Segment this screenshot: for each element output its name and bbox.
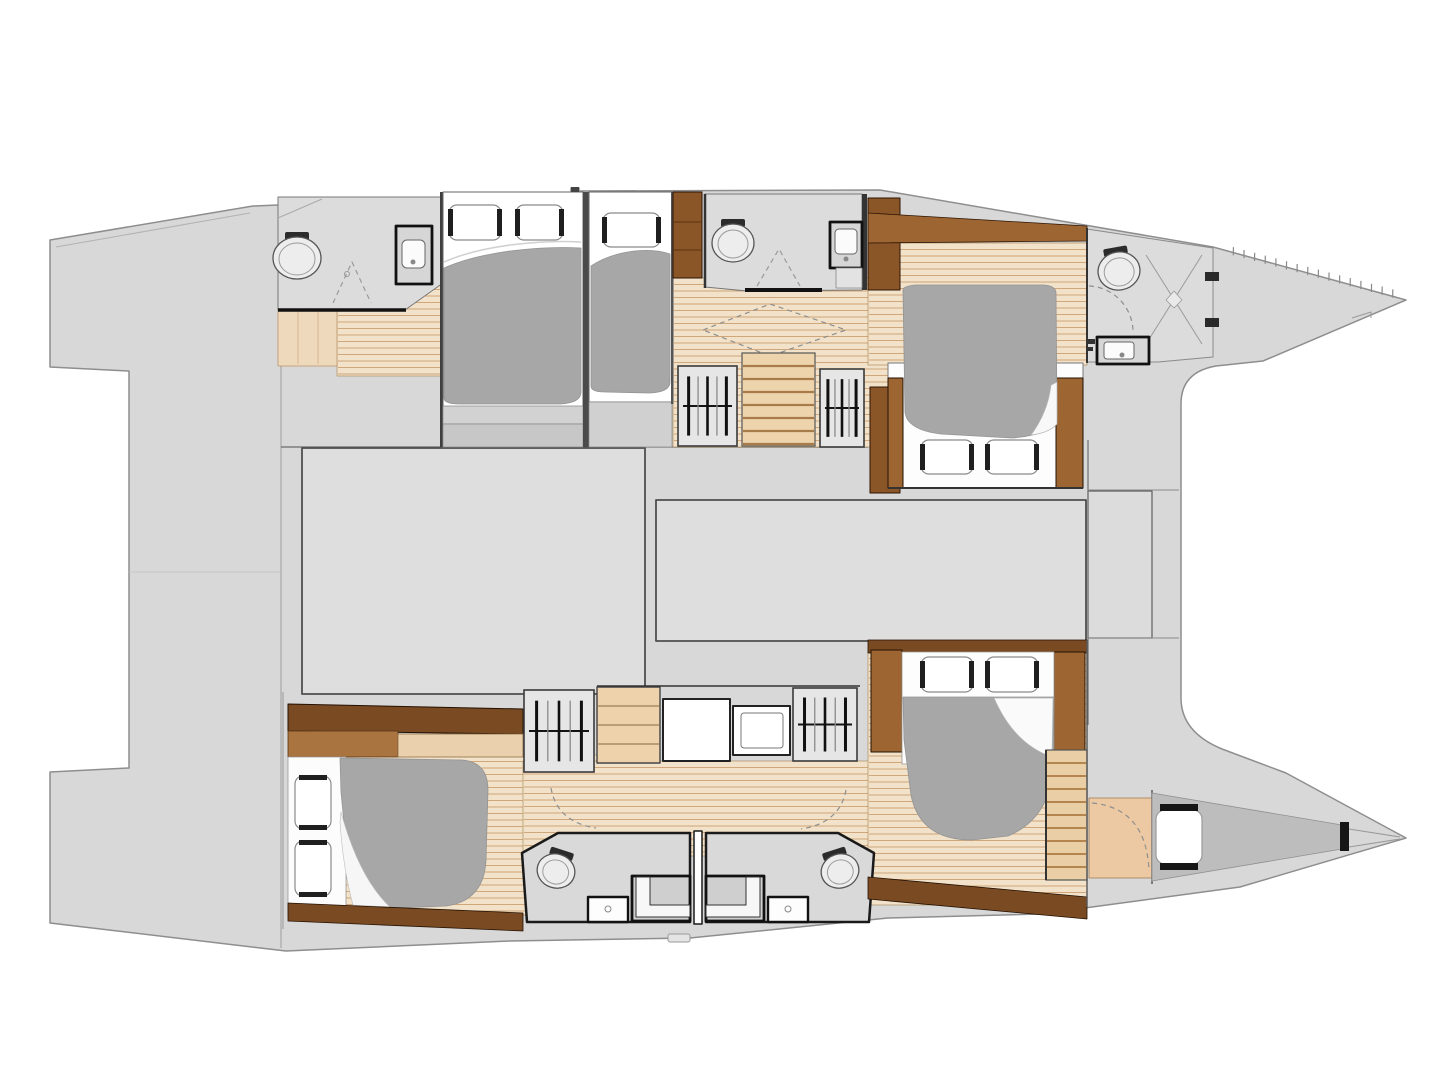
- upper-single-cabin-foot-strip: [589, 402, 672, 447]
- upper-single-cabin-window: [602, 213, 661, 247]
- lower-sink-left: [588, 897, 628, 922]
- upper-fwd-bed-mattress: [903, 285, 1057, 438]
- transom-step: [668, 934, 690, 942]
- upper-fwd-cabin-window-2: [985, 440, 1039, 474]
- upper-fwd-cabinet-1: [868, 198, 900, 290]
- deck-step-tick: [571, 187, 579, 192]
- upper-cabin-divider-wall: [583, 192, 589, 447]
- upper-fwd-bed-rail-right: [1056, 378, 1083, 488]
- bow-sink-tick-1: [1088, 339, 1095, 344]
- lower-fwd-bed-rail-left: [871, 650, 902, 752]
- side-sole-panel: [1088, 491, 1152, 638]
- forepeak-bulkhead: [1340, 822, 1349, 851]
- upper-aft-bed-mattress: [444, 248, 581, 404]
- upper-mid-shelf: [836, 268, 862, 288]
- lower-aft-shelf-tan: [398, 734, 523, 757]
- lower-vanity-desk: [663, 699, 730, 761]
- lower-aft-cabin-window-2: [295, 840, 331, 897]
- lower-aft-shelf-dark: [288, 704, 523, 734]
- upper-single-bed-mattress: [591, 250, 670, 393]
- bow-bulkhead-cleat-1: [1205, 272, 1219, 281]
- forepeak-berth: [1156, 810, 1202, 864]
- lower-fwd-cabin-window-1: [920, 657, 974, 692]
- upper-mid-sink-faucet: [844, 257, 849, 262]
- lower-aft-wardrobe: [524, 690, 594, 772]
- bow-sink-basin: [1104, 342, 1134, 359]
- lower-mid-wardrobe: [793, 688, 857, 761]
- upper-fwd-cabin-window-1: [920, 440, 974, 474]
- lower-bathroom-mid-wall: [694, 831, 702, 924]
- lower-fwd-bed-rail-right: [1054, 652, 1085, 752]
- bow-bulkhead-cleat-2: [1205, 318, 1219, 327]
- upper-companionway-stairs: [742, 353, 815, 446]
- upper-tall-cabinet: [673, 192, 702, 278]
- lower-aft-cabin-window-1: [295, 775, 331, 830]
- floorplan-canvas: [0, 0, 1433, 1074]
- upper-aft-cabin-window-2: [515, 205, 564, 240]
- upper-aft-cabin-window-1: [448, 205, 502, 240]
- bow-sink-tick-2: [1088, 347, 1093, 351]
- saloon-sole-panel-right: [656, 500, 1086, 641]
- lower-fwd-cabin-window-2: [985, 657, 1039, 692]
- upper-fwd-bed-rail-left: [888, 378, 903, 488]
- forepeak-berth-trim-bottom: [1160, 863, 1198, 870]
- upper-wardrobe-right: [820, 369, 864, 447]
- forepeak-berth-trim-top: [1160, 804, 1198, 811]
- floorplan-svg: [0, 0, 1433, 1074]
- lower-aft-shelf-mid: [288, 731, 398, 757]
- lower-fwd-stairs: [1046, 750, 1087, 880]
- upper-mid-sink-basin: [835, 229, 857, 254]
- saloon-sole-panel-left: [302, 448, 645, 694]
- upper-aft-cabin-foot-strip-2: [443, 424, 583, 447]
- lower-sink-right: [768, 897, 808, 922]
- upper-wardrobe-left: [678, 366, 737, 446]
- upper-aft-cabin-foot-strip-1: [443, 406, 583, 424]
- upper-aft-sink-faucet: [411, 260, 416, 265]
- bow-sink-faucet: [1120, 353, 1125, 358]
